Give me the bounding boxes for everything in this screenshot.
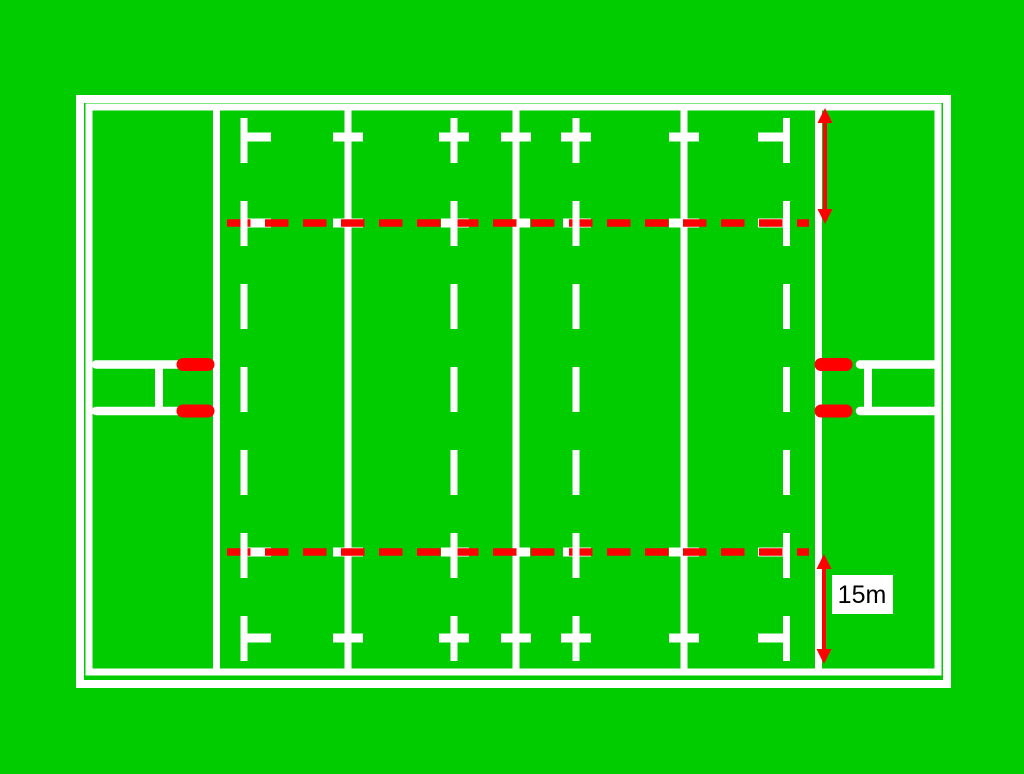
- rugby-pitch-diagram: 15m: [0, 0, 1024, 774]
- pitch-canvas: 15m: [0, 0, 1024, 774]
- distance-label-text: 15m: [838, 581, 887, 609]
- distance-label: 15m: [832, 575, 893, 614]
